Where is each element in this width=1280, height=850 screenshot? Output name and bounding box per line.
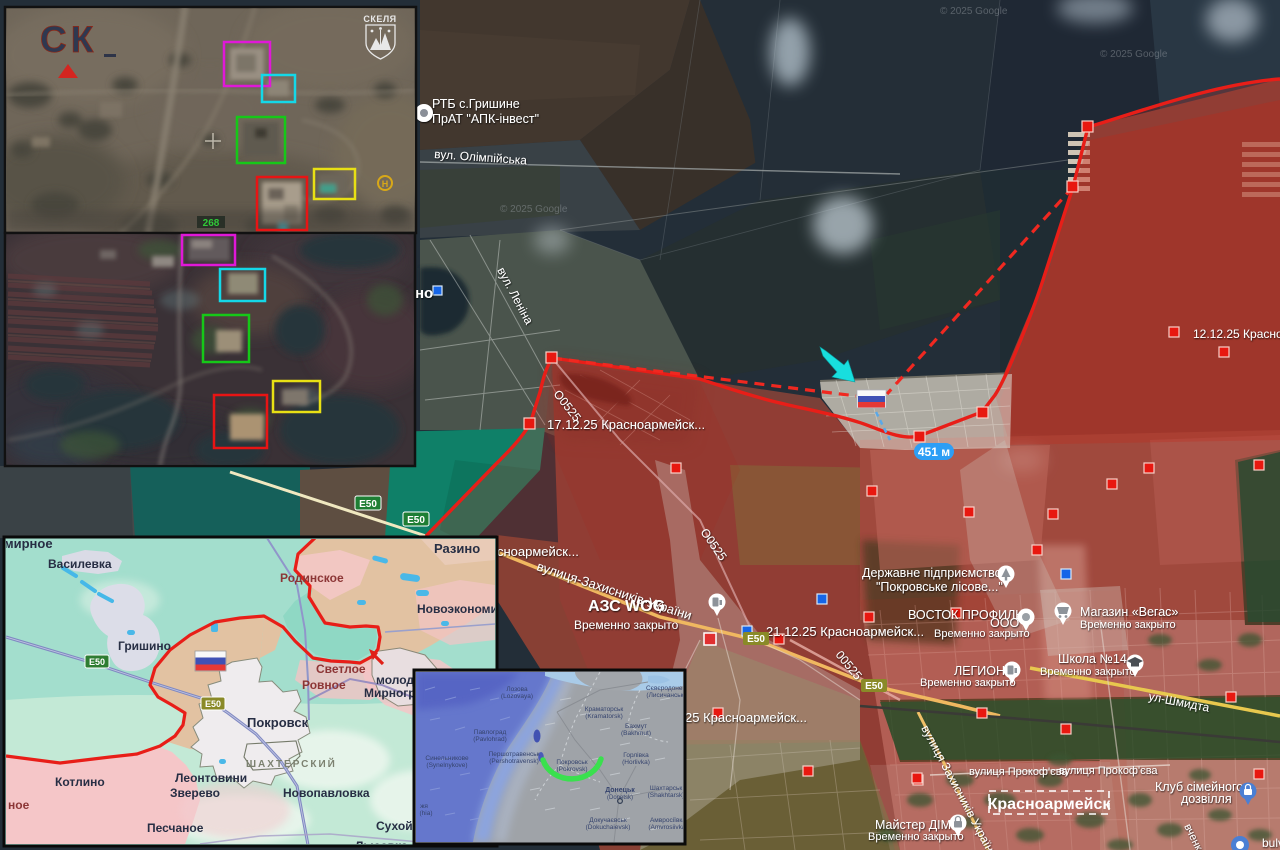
- svg-text:Покровськ: Покровськ: [556, 759, 587, 766]
- svg-text:Леонтовини: Леонтовини: [175, 771, 247, 785]
- svg-text:(hia): (hia): [419, 810, 432, 817]
- svg-text:© 2025 Google: © 2025 Google: [1100, 49, 1168, 60]
- svg-text:сноармейск...: сноармейск...: [497, 544, 579, 559]
- svg-text:451 м: 451 м: [918, 445, 950, 459]
- svg-text:12.12.25 Красноа: 12.12.25 Красноа: [1193, 327, 1280, 341]
- svg-text:жя: жя: [420, 803, 428, 810]
- svg-text:(Dokuchaievsk): (Dokuchaievsk): [586, 824, 631, 831]
- svg-text:© 2025 Google: © 2025 Google: [500, 204, 568, 215]
- svg-text:Родинское: Родинское: [280, 571, 344, 585]
- svg-text:Временно закрыто: Временно закрыто: [934, 628, 1030, 640]
- svg-text:E50: E50: [359, 499, 377, 510]
- svg-text:(Lozovaya): (Lozovaya): [501, 693, 533, 700]
- svg-text:Н: Н: [382, 179, 389, 189]
- svg-text:РТБ с.Гришине: РТБ с.Гришине: [432, 97, 520, 111]
- svg-text:Шахтарськ: Шахтарськ: [650, 785, 683, 792]
- svg-text:25 Красноармейск...: 25 Красноармейск...: [685, 710, 807, 725]
- svg-text:Ровное: Ровное: [302, 678, 346, 692]
- svg-text:вулиця Прокоф'єва: вулиця Прокоф'єва: [1059, 765, 1158, 777]
- svg-text:E50: E50: [407, 515, 425, 526]
- svg-text:E50: E50: [205, 699, 221, 709]
- svg-text:268: 268: [203, 218, 220, 229]
- svg-text:СК: СК: [40, 19, 97, 60]
- svg-text:Временно закрыто: Временно закрыто: [920, 677, 1016, 689]
- svg-text:21.12.25 Красноармейск...: 21.12.25 Красноармейск...: [766, 624, 924, 639]
- svg-text:(Pershotravensk): (Pershotravensk): [489, 758, 539, 765]
- svg-text:Докучаєвськ: Докучаєвськ: [589, 817, 627, 824]
- svg-text:Горлівка: Горлівка: [623, 751, 649, 759]
- svg-text:Светлое: Светлое: [316, 662, 366, 676]
- svg-text:Магазин «Вегас»: Магазин «Вегас»: [1080, 605, 1178, 619]
- svg-text:(Лисичанськ): (Лисичанськ): [646, 692, 685, 699]
- svg-text:(Pokrovsk): (Pokrovsk): [556, 766, 587, 773]
- svg-text:Гришино: Гришино: [118, 639, 171, 653]
- svg-text:(Amvrosiivka): (Amvrosiivka): [648, 824, 687, 831]
- svg-text:Покровск: Покровск: [247, 715, 309, 730]
- svg-text:Сєвєродоне..: Сєвєродоне..: [646, 685, 686, 692]
- svg-text:E50: E50: [865, 681, 883, 692]
- svg-text:Новопавловка: Новопавловка: [283, 786, 370, 800]
- svg-text:Донецьк: Донецьк: [605, 787, 635, 794]
- svg-text:(Synelnykove): (Synelnykove): [426, 762, 467, 769]
- svg-text:E50: E50: [747, 634, 765, 645]
- svg-text:Новоэкономич: Новоэкономич: [417, 602, 505, 616]
- svg-text:вулиця Прокоф'єва: вулиця Прокоф'єва: [969, 766, 1068, 778]
- svg-text:Школа №14: Школа №14: [1058, 652, 1127, 666]
- svg-text:Першотравенськ: Першотравенськ: [489, 751, 540, 758]
- svg-text:Зверево: Зверево: [170, 786, 220, 800]
- svg-text:E50: E50: [89, 657, 105, 667]
- svg-text:Амвросіївка: Амвросіївка: [650, 816, 686, 824]
- svg-text:ШАХТЕРСКИЙ: ШАХТЕРСКИЙ: [246, 757, 337, 770]
- svg-text:(Kramatorsk): (Kramatorsk): [585, 713, 623, 720]
- svg-text:но: но: [415, 285, 433, 302]
- svg-text:Краматорськ: Краматорськ: [585, 706, 624, 713]
- svg-text:Красноармейск: Красноармейск: [988, 796, 1112, 813]
- svg-text:АЗС WOG: АЗС WOG: [588, 598, 665, 615]
- svg-text:ПрАТ "АПК-інвест": ПрАТ "АПК-інвест": [432, 112, 539, 126]
- svg-text:Майстер ДІМ: Майстер ДІМ: [875, 818, 951, 832]
- svg-text:Павлоград: Павлоград: [474, 729, 507, 736]
- svg-text:дозвілля: дозвілля: [1181, 792, 1232, 806]
- svg-text:Временно закрыто: Временно закрыто: [574, 618, 679, 632]
- svg-text:bulva: bulva: [1262, 836, 1280, 850]
- svg-text:Временно закрыто: Временно закрыто: [868, 831, 964, 843]
- svg-text:Василевка: Василевка: [48, 557, 112, 571]
- svg-text:ное: ное: [8, 798, 30, 812]
- svg-text:(Pavlohrad): (Pavlohrad): [473, 736, 507, 743]
- svg-text:(Bakhmut): (Bakhmut): [621, 730, 651, 737]
- svg-text:(Shakhtarsk): (Shakhtarsk): [648, 792, 685, 799]
- svg-text:Временно закрыто: Временно закрыто: [1040, 666, 1136, 678]
- svg-text:(Horlivka): (Horlivka): [622, 759, 650, 766]
- svg-text:Песчаное: Песчаное: [147, 821, 204, 835]
- svg-text:Временно закрыто: Временно закрыто: [1080, 619, 1176, 631]
- svg-text:СКЕЛЯ: СКЕЛЯ: [363, 14, 396, 24]
- svg-text:Котлино: Котлино: [55, 775, 105, 789]
- svg-text:Бахмут: Бахмут: [625, 723, 647, 730]
- svg-text:Державне підприємство: Державне підприємство: [862, 566, 1002, 580]
- svg-text:Разино: Разино: [434, 541, 480, 556]
- svg-text:(Donetsk): (Donetsk): [607, 795, 633, 801]
- svg-text:© 2025 Google: © 2025 Google: [940, 6, 1008, 17]
- svg-text:ЛЕГИОН: ЛЕГИОН: [954, 664, 1005, 678]
- svg-text:Лозова: Лозова: [506, 686, 528, 693]
- svg-text:"Покровське лісове...": "Покровське лісове...": [876, 580, 1003, 594]
- svg-text:Синельникове: Синельникове: [425, 755, 469, 762]
